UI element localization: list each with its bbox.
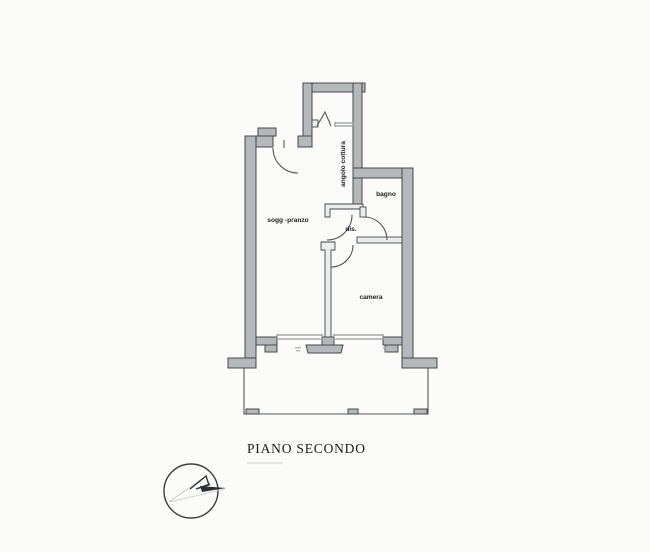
label-kitchenette: angolo cottura (340, 141, 347, 187)
pilaster-bottom-left (265, 345, 277, 352)
dimension-mark (383, 347, 389, 348)
dimension-mark (296, 350, 300, 351)
living-window-lines (277, 334, 322, 340)
dimension-mark (384, 350, 388, 351)
floor-title: PIANO SECONDO (247, 441, 366, 456)
wall-left-foot (228, 358, 256, 368)
terrace-tab-middle (348, 409, 358, 414)
label-bedroom: camera (359, 294, 382, 301)
wall-corridor-right (353, 83, 362, 209)
label-living-room: sogg -pranzo (267, 217, 308, 224)
partition-bedroom-north (357, 237, 402, 243)
compass-circle (164, 464, 218, 518)
label-hallway: dis. (345, 226, 357, 233)
scanned-floor-plan-page: sogg -pranzo angolo cottura bagno dis. c… (0, 0, 650, 552)
wall-top-pilaster-bump (258, 128, 276, 136)
partition-bedroom-west (321, 242, 335, 337)
pier-bottom-middle (306, 345, 343, 353)
wall-right (402, 168, 413, 358)
terrace-tab-right (414, 409, 427, 414)
label-bathroom: bagno (376, 191, 396, 198)
wall-bottom-right-band (383, 337, 402, 345)
kitchen-window-lines (335, 122, 353, 127)
entrance-door-arc (273, 148, 298, 173)
floor-plan-drawing: sogg -pranzo angolo cottura bagno dis. c… (0, 0, 650, 552)
north-arrow-tail (200, 486, 226, 492)
scan-smudge-under-title (247, 462, 283, 464)
balcony-door-chevron (317, 112, 331, 126)
wall-right-foot (402, 358, 437, 368)
exterior-walls (228, 83, 437, 368)
wall-bottom-mid-band (322, 337, 334, 345)
bedroom-window-lines (334, 334, 383, 340)
dimension-mark (295, 347, 301, 348)
wall-left (245, 136, 256, 358)
partition-hall-top (325, 204, 363, 217)
bath-door-jamb (360, 207, 366, 217)
compass (164, 464, 226, 518)
terrace-outline (244, 368, 428, 414)
wall-living-top-right (298, 136, 312, 147)
wall-bottom-left-band (256, 337, 277, 345)
terrace-tab-left (246, 409, 259, 414)
terrace (244, 368, 428, 414)
